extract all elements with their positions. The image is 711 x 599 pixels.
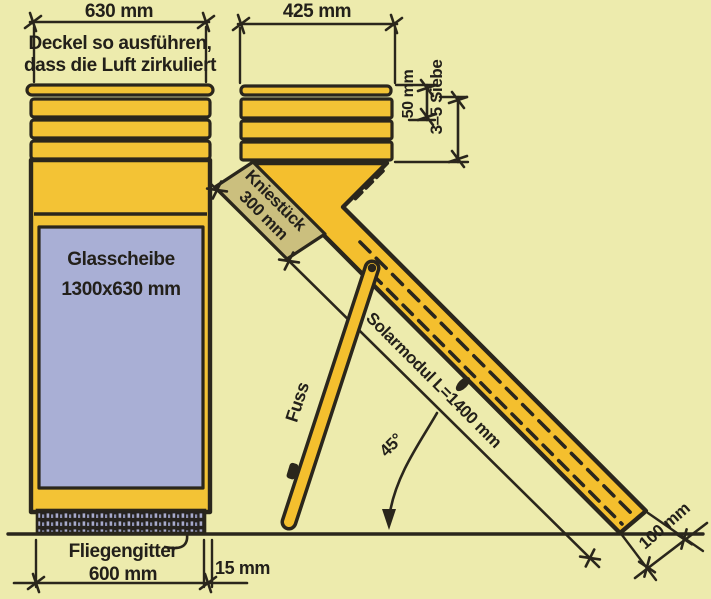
box-lid-slat [27,85,213,95]
sieve-slat-1 [241,99,392,118]
drying-box [27,85,213,533]
gap-label: 15 mm [215,558,270,578]
diagram-canvas: 630 mm Deckel so ausführen, dass die Luf… [0,0,711,599]
box-vent-slat-3 [31,141,210,159]
solar-dryer-diagram: 630 mm Deckel so ausführen, dass die Luf… [0,0,711,599]
sieve-width-label: 425 mm [283,1,351,22]
lid-note-line2: dass die Luft zirkuliert [24,55,217,76]
mesh-label-line2: 600 mm [89,564,157,585]
fly-screen-mesh [37,510,205,533]
sieve-spacing-label: 50 mm [400,69,417,118]
glass-label-line2: 1300x630 mm [61,279,180,300]
box-vent-slat-1 [31,99,210,117]
box-width-label: 630 mm [85,1,153,22]
glass-label-line1: Glasscheibe [67,249,175,270]
sieve-slat-top [241,86,391,95]
mesh-label-line1: Fliegengitter [69,541,179,562]
lid-note-line1: Deckel so ausführen, [28,33,211,54]
sieve-count-label: 3–5 Siebe [427,60,446,135]
box-vent-slat-2 [31,120,210,138]
foot-pivot-bolt [368,264,376,272]
sieve-slat-2 [241,121,392,139]
sieve-slat-3 [241,142,392,160]
